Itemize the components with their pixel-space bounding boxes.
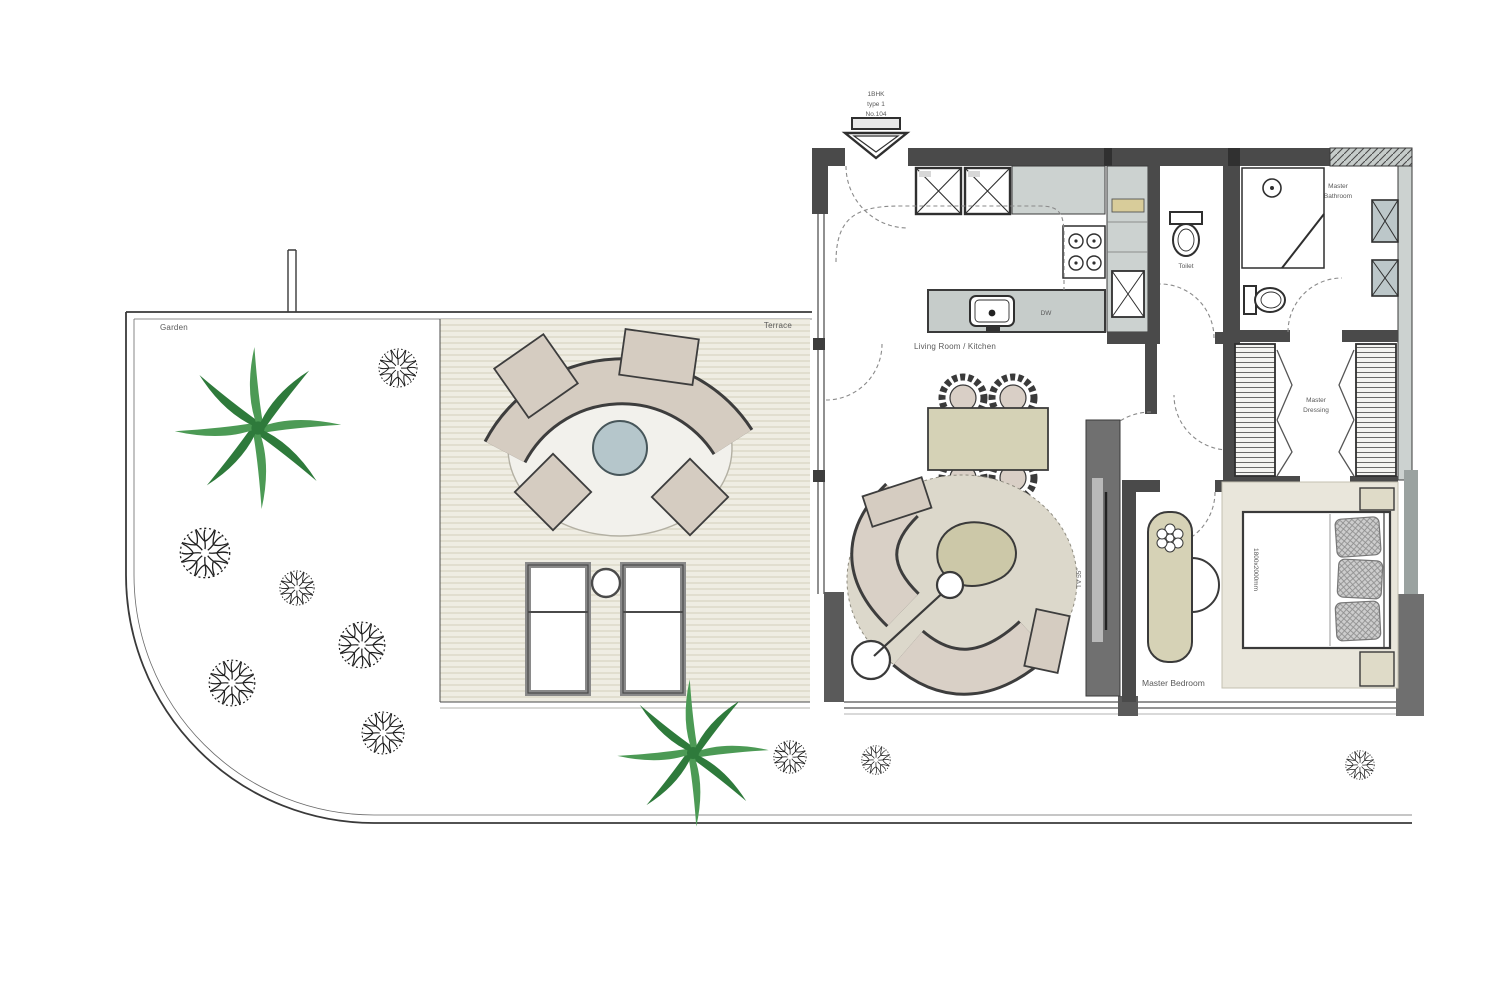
pillow — [1337, 559, 1383, 599]
garden-tree-icon — [180, 528, 229, 577]
unit-tag-line2: type 1 — [867, 101, 885, 108]
pillow — [1335, 601, 1381, 641]
master-bedroom: 1800x2000mm Master Bedroom — [1142, 482, 1398, 688]
living-kitchen-label: Living Room / Kitchen — [914, 342, 996, 351]
sink-icon — [970, 296, 1014, 332]
appliance-box — [1112, 199, 1144, 212]
master-dressing-label-2: Dressing — [1303, 407, 1329, 414]
unit-tag: 1BHK type 1 No.104 — [866, 91, 887, 118]
garden-tree-icon — [339, 622, 385, 668]
pillow — [1335, 517, 1382, 558]
lounger-side-table — [592, 569, 620, 597]
nightstand — [1360, 488, 1394, 510]
master-bathroom-label-2: Bathroom — [1324, 193, 1352, 200]
palm-tree-icon — [175, 347, 342, 509]
garden-tree-icon — [280, 571, 314, 605]
dryer-icon — [965, 168, 1010, 214]
wc-icon — [1170, 212, 1202, 256]
nightstand — [1360, 652, 1394, 686]
column — [824, 592, 844, 702]
wardrobe-hatched-left — [1235, 344, 1275, 476]
fence-stub — [288, 250, 296, 312]
toilet-label: Toilet — [1178, 263, 1193, 270]
floor-plan-canvas: Terrace Garden 1BHK type 1 — [0, 0, 1500, 1000]
kitchen-island: DW — [928, 290, 1105, 332]
dishwasher-label: DW — [1041, 310, 1053, 317]
master-bathroom-label-1: Master — [1328, 183, 1349, 190]
garden-tree-icon — [1346, 751, 1375, 780]
washer-icon — [916, 168, 961, 214]
wc-icon — [1244, 286, 1285, 314]
garden-tree-icon — [209, 660, 255, 706]
unit-tag-line1: 1BHK — [868, 91, 886, 98]
column — [1396, 594, 1424, 716]
tv-label: TV 55" — [1076, 568, 1083, 588]
terrace-round-table — [593, 421, 647, 475]
bed: 1800x2000mm — [1243, 512, 1390, 648]
garden-label: Garden — [160, 323, 188, 332]
master-bedroom-label: Master Bedroom — [1142, 678, 1205, 688]
terrace: Terrace — [440, 319, 810, 708]
unit-tag-line3: No.104 — [866, 111, 887, 118]
terrace-label: Terrace — [764, 321, 792, 330]
garden-tree-icon — [862, 746, 891, 775]
garden-tree-icon — [774, 741, 806, 773]
garden-tree-icon — [362, 712, 404, 754]
wardrobe-hatched-right — [1356, 344, 1396, 476]
bed-size-label: 1800x2000mm — [1252, 548, 1259, 591]
tall-cabinets — [1107, 166, 1148, 332]
master-dressing-label-1: Master — [1306, 397, 1327, 404]
cooktop-icon — [1063, 226, 1105, 278]
dining-table — [928, 408, 1048, 470]
shower-icon — [1242, 168, 1324, 268]
garden-tree-icon — [379, 349, 417, 387]
